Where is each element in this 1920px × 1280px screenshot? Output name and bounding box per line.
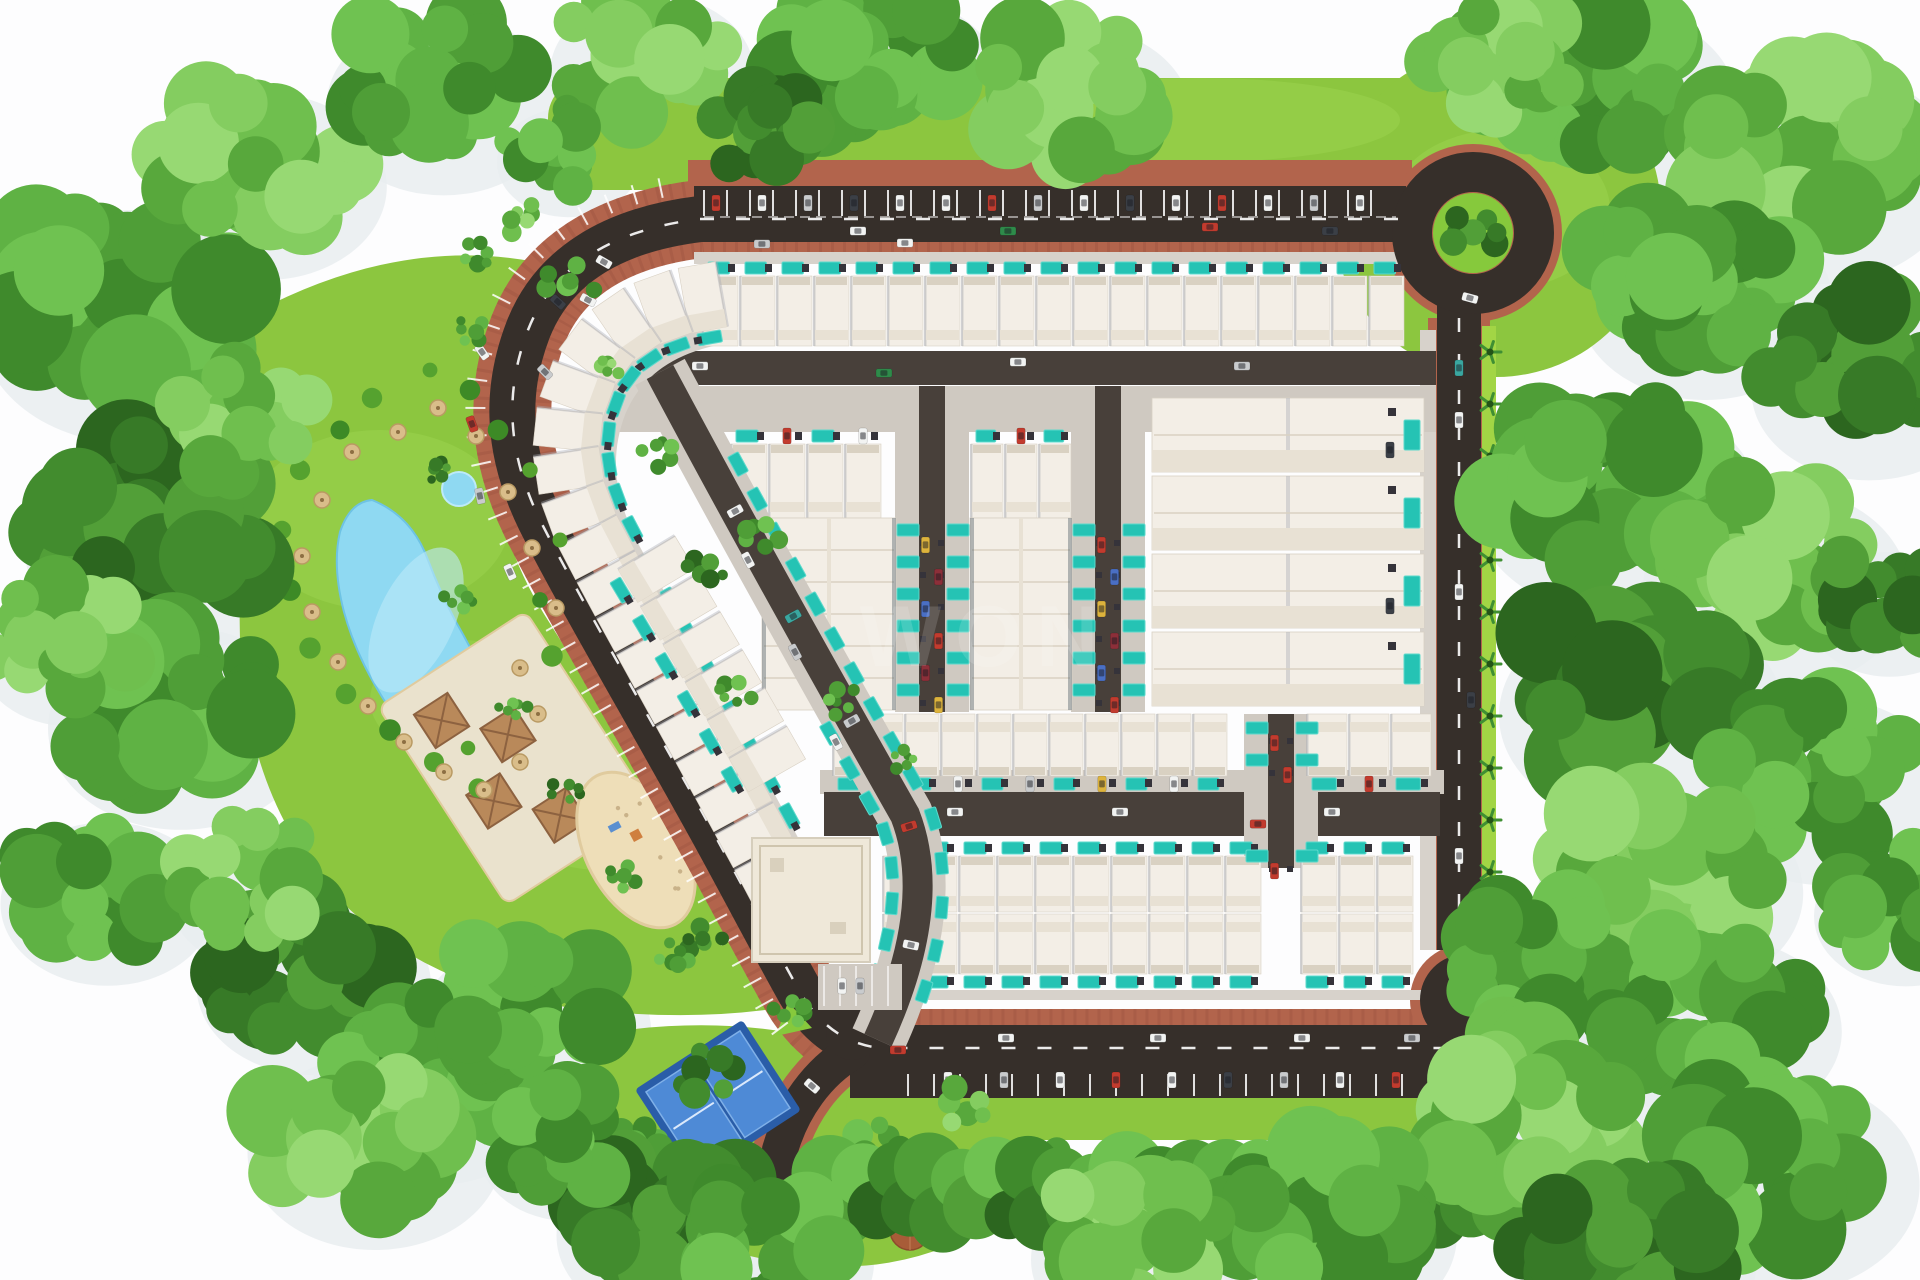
- car: [838, 978, 846, 994]
- car: [1112, 808, 1128, 816]
- car: [1172, 195, 1180, 211]
- car: [859, 428, 867, 444]
- car: [1097, 665, 1105, 681]
- car: [1283, 767, 1291, 783]
- car: [856, 978, 864, 994]
- car: [850, 227, 866, 235]
- car: [1386, 598, 1394, 614]
- car: [988, 195, 996, 211]
- car: [692, 362, 708, 370]
- car: [1218, 195, 1226, 211]
- car: [921, 601, 929, 617]
- car: [754, 240, 770, 248]
- bush: [532, 592, 548, 608]
- car: [876, 369, 892, 377]
- site-plan-rendering: WON: [0, 0, 1920, 1280]
- median-strip: [1482, 326, 1496, 952]
- car: [1026, 776, 1034, 792]
- car: [1097, 601, 1105, 617]
- house-row-right: [1152, 632, 1424, 706]
- car: [1467, 692, 1475, 708]
- car: [1455, 584, 1463, 600]
- bush: [461, 741, 476, 756]
- car: [1110, 697, 1118, 713]
- car: [712, 195, 720, 211]
- bush: [460, 380, 481, 401]
- car: [1336, 1072, 1344, 1088]
- house-row: [1306, 714, 1431, 792]
- car: [1280, 1072, 1288, 1088]
- car: [954, 776, 962, 792]
- house-row-right: [1152, 476, 1424, 550]
- house-block: [970, 518, 1072, 710]
- car: [921, 537, 929, 553]
- car: [1264, 195, 1272, 211]
- car: [783, 428, 791, 444]
- car: [1455, 848, 1463, 864]
- car: [890, 1046, 906, 1054]
- car: [1224, 1072, 1232, 1088]
- bush: [336, 684, 357, 705]
- bush: [330, 420, 349, 439]
- car: [1392, 1072, 1400, 1088]
- bush: [488, 420, 509, 441]
- car: [1080, 195, 1088, 211]
- car: [1110, 633, 1118, 649]
- bush: [299, 637, 320, 658]
- car: [1017, 428, 1025, 444]
- car: [1170, 776, 1178, 792]
- car: [1356, 195, 1364, 211]
- car: [1000, 227, 1016, 235]
- car: [1270, 735, 1278, 751]
- car: [1097, 537, 1105, 553]
- car: [1386, 442, 1394, 458]
- car: [934, 697, 942, 713]
- car: [934, 569, 942, 585]
- bush: [541, 645, 562, 666]
- car: [897, 239, 913, 247]
- car: [1324, 808, 1340, 816]
- house-row: [970, 428, 1071, 518]
- car: [1168, 1072, 1176, 1088]
- car: [1322, 227, 1338, 235]
- car: [1150, 1034, 1166, 1042]
- car: [1110, 569, 1118, 585]
- bush: [423, 363, 438, 378]
- bush: [553, 533, 568, 548]
- house-row-right: [1152, 554, 1424, 628]
- car: [947, 808, 963, 816]
- house-row-right: [1152, 398, 1424, 472]
- car: [804, 195, 812, 211]
- car: [896, 195, 904, 211]
- car: [1310, 195, 1318, 211]
- car: [1126, 195, 1134, 211]
- bush: [522, 462, 537, 477]
- car: [1000, 1072, 1008, 1088]
- car: [998, 1034, 1014, 1042]
- car: [942, 195, 950, 211]
- car: [1056, 1072, 1064, 1088]
- bush: [362, 388, 382, 408]
- car: [1365, 776, 1373, 792]
- car: [1294, 1034, 1310, 1042]
- car: [1034, 195, 1042, 211]
- car: [850, 195, 858, 211]
- car: [1455, 412, 1463, 428]
- car: [1112, 1072, 1120, 1088]
- masterplan-canvas: [0, 0, 1920, 1280]
- car: [1202, 223, 1218, 231]
- car: [1098, 776, 1106, 792]
- car: [1250, 820, 1266, 828]
- car: [1234, 362, 1250, 370]
- car: [758, 195, 766, 211]
- car: [934, 633, 942, 649]
- car: [1404, 1034, 1420, 1042]
- car: [1010, 358, 1026, 366]
- car: [1270, 863, 1278, 879]
- car: [921, 665, 929, 681]
- car: [1455, 360, 1463, 376]
